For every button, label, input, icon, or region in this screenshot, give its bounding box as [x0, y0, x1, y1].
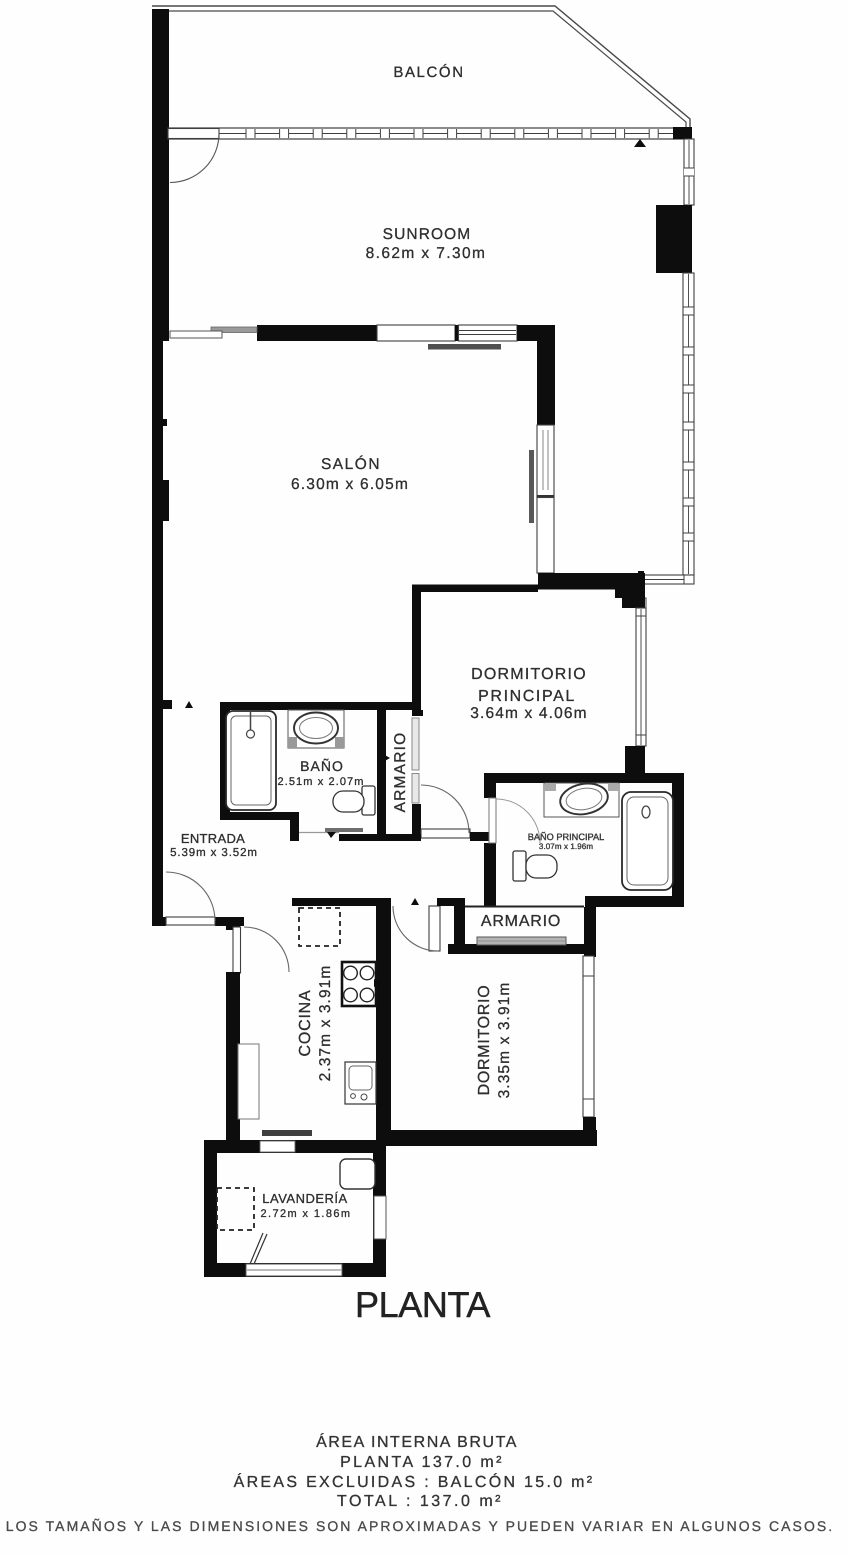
svg-text:ARMARIO: ARMARIO [392, 732, 409, 813]
svg-text:SUNROOM: SUNROOM [383, 226, 472, 243]
svg-text:BAÑO PRINCIPAL: BAÑO PRINCIPAL [528, 831, 604, 842]
svg-text:3.64m x 4.06m: 3.64m x 4.06m [470, 705, 587, 722]
svg-text:ÁREA INTERNA BRUTA: ÁREA INTERNA BRUTA [316, 1433, 518, 1451]
svg-text:DORMITORIO: DORMITORIO [471, 666, 587, 683]
svg-text:2.37m x 3.91m: 2.37m x 3.91m [317, 965, 334, 1082]
svg-text:2.72m x 1.86m: 2.72m x 1.86m [261, 1208, 352, 1220]
svg-text:SALÓN: SALÓN [321, 455, 381, 473]
svg-text:5.39m x 3.52m: 5.39m x 3.52m [170, 847, 258, 859]
svg-text:ENTRADA: ENTRADA [181, 831, 245, 846]
svg-text:8.62m x 7.30m: 8.62m x 7.30m [366, 245, 487, 262]
svg-text:ARMARIO: ARMARIO [481, 913, 561, 930]
svg-text:TOTAL : 137.0 m²: TOTAL : 137.0 m² [337, 1493, 503, 1510]
svg-text:DORMITORIO: DORMITORIO [476, 985, 493, 1096]
svg-text:LOS TAMAÑOS Y LAS DIMENSIONES: LOS TAMAÑOS Y LAS DIMENSIONES SON APROXI… [6, 1518, 834, 1534]
svg-text:PLANTA 137.0 m²: PLANTA 137.0 m² [340, 1454, 504, 1471]
svg-text:3.35m x 3.91m: 3.35m x 3.91m [496, 982, 513, 1099]
svg-text:BALCÓN: BALCÓN [393, 63, 464, 81]
svg-text:LAVANDERÍA: LAVANDERÍA [262, 1191, 347, 1206]
svg-text:PLANTA: PLANTA [355, 1284, 490, 1325]
svg-text:BAÑO: BAÑO [300, 758, 344, 774]
svg-text:3.07m x 1.96m: 3.07m x 1.96m [539, 842, 593, 851]
svg-text:2.51m x 2.07m: 2.51m x 2.07m [277, 776, 364, 788]
svg-text:PRINCIPAL: PRINCIPAL [478, 688, 576, 705]
svg-text:6.30m x 6.05m: 6.30m x 6.05m [291, 476, 409, 493]
svg-text:COCINA: COCINA [297, 989, 314, 1056]
svg-text:ÁREAS EXCLUIDAS : BALCÓN 15.0: ÁREAS EXCLUIDAS : BALCÓN 15.0 m² [234, 1473, 595, 1491]
